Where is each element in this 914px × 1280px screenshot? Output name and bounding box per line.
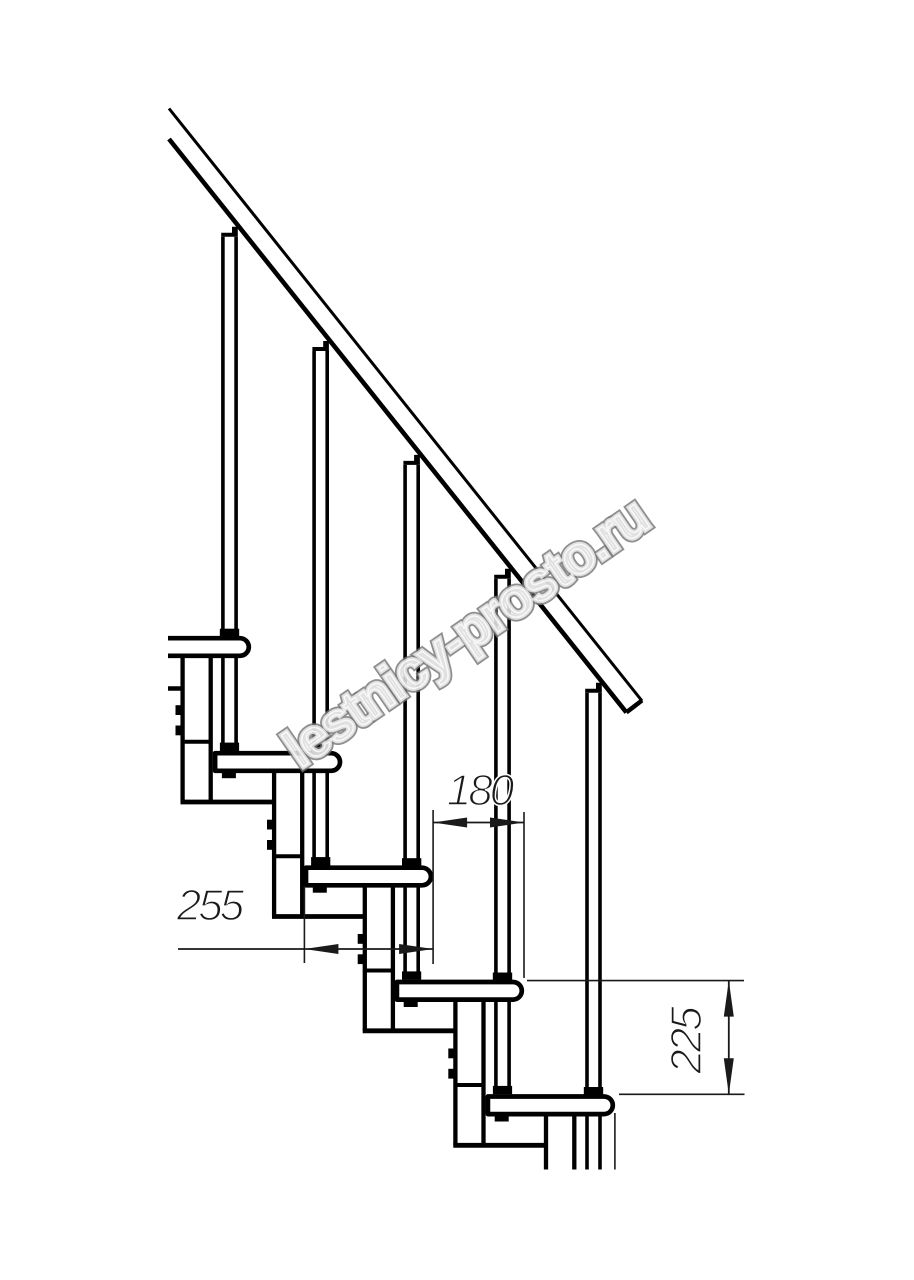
svg-text:225: 225 <box>662 1006 711 1075</box>
svg-text:255: 255 <box>176 881 245 930</box>
svg-text:180: 180 <box>447 766 515 815</box>
